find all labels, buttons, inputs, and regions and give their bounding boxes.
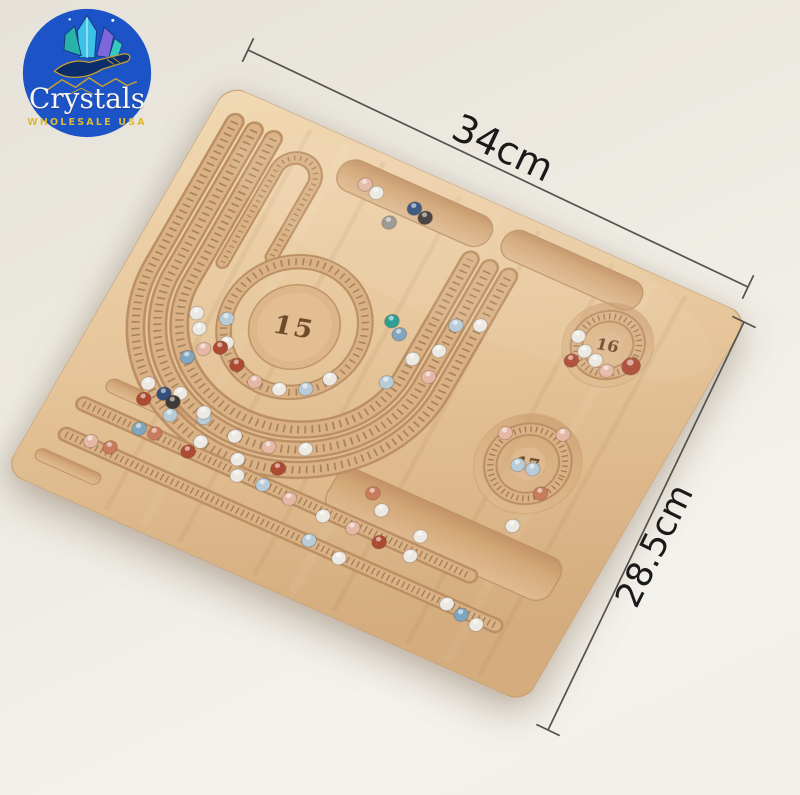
product-photo-scene: 15 16 17	[0, 0, 800, 795]
width-dimension-label: 34cm	[446, 105, 561, 190]
logo-tagline-text: WHOLESALE USA	[20, 117, 154, 128]
logo-brand-text: Crystals	[20, 82, 154, 115]
brand-logo: Crystals WHOLESALE USA	[20, 6, 154, 140]
